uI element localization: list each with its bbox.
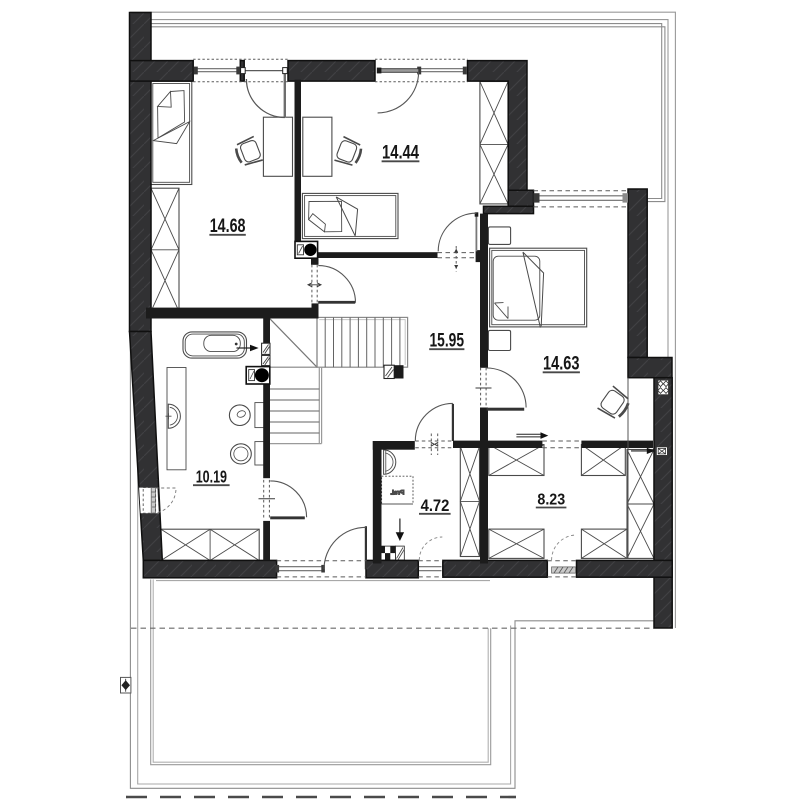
svg-text:4.72: 4.72 [421, 496, 450, 515]
svg-text:8.23: 8.23 [537, 492, 565, 509]
svg-text:14.44: 14.44 [382, 141, 419, 163]
svg-text:14.68: 14.68 [210, 215, 246, 237]
svg-text:Pral.: Pral. [390, 490, 404, 497]
svg-text:14.63: 14.63 [543, 352, 580, 374]
svg-text:10.19: 10.19 [196, 466, 227, 486]
svg-text:15.95: 15.95 [430, 329, 465, 351]
